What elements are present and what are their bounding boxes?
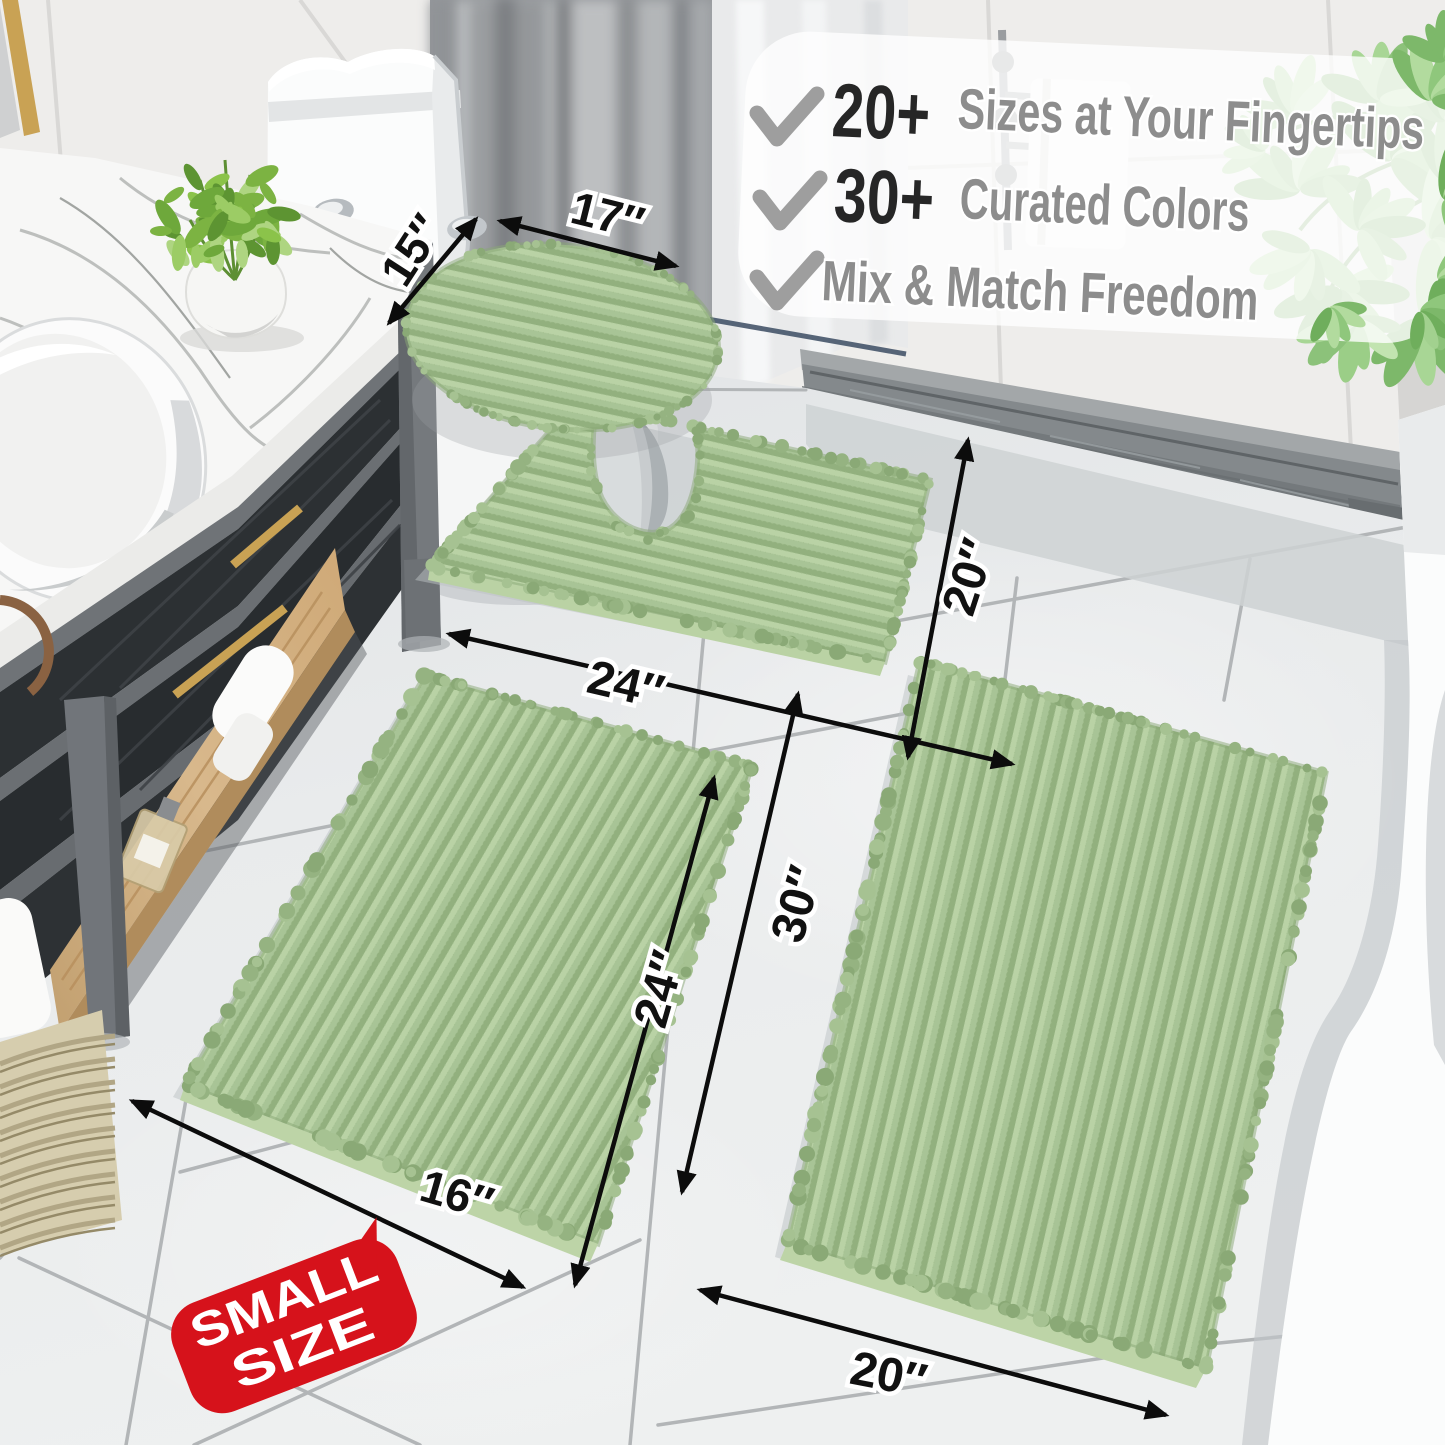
svg-text:30+: 30+ <box>832 153 936 242</box>
svg-text:20+: 20+ <box>830 68 932 157</box>
svg-text:Curated Colors: Curated Colors <box>958 167 1251 244</box>
